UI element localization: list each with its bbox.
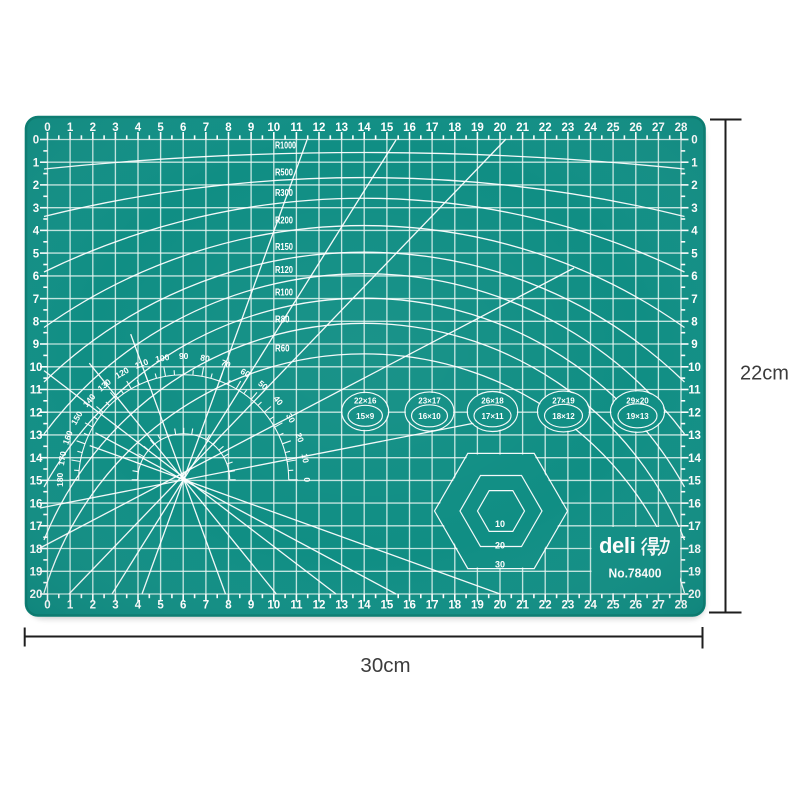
svg-text:22cm: 22cm [740,363,789,385]
svg-text:30cm: 30cm [360,654,410,677]
